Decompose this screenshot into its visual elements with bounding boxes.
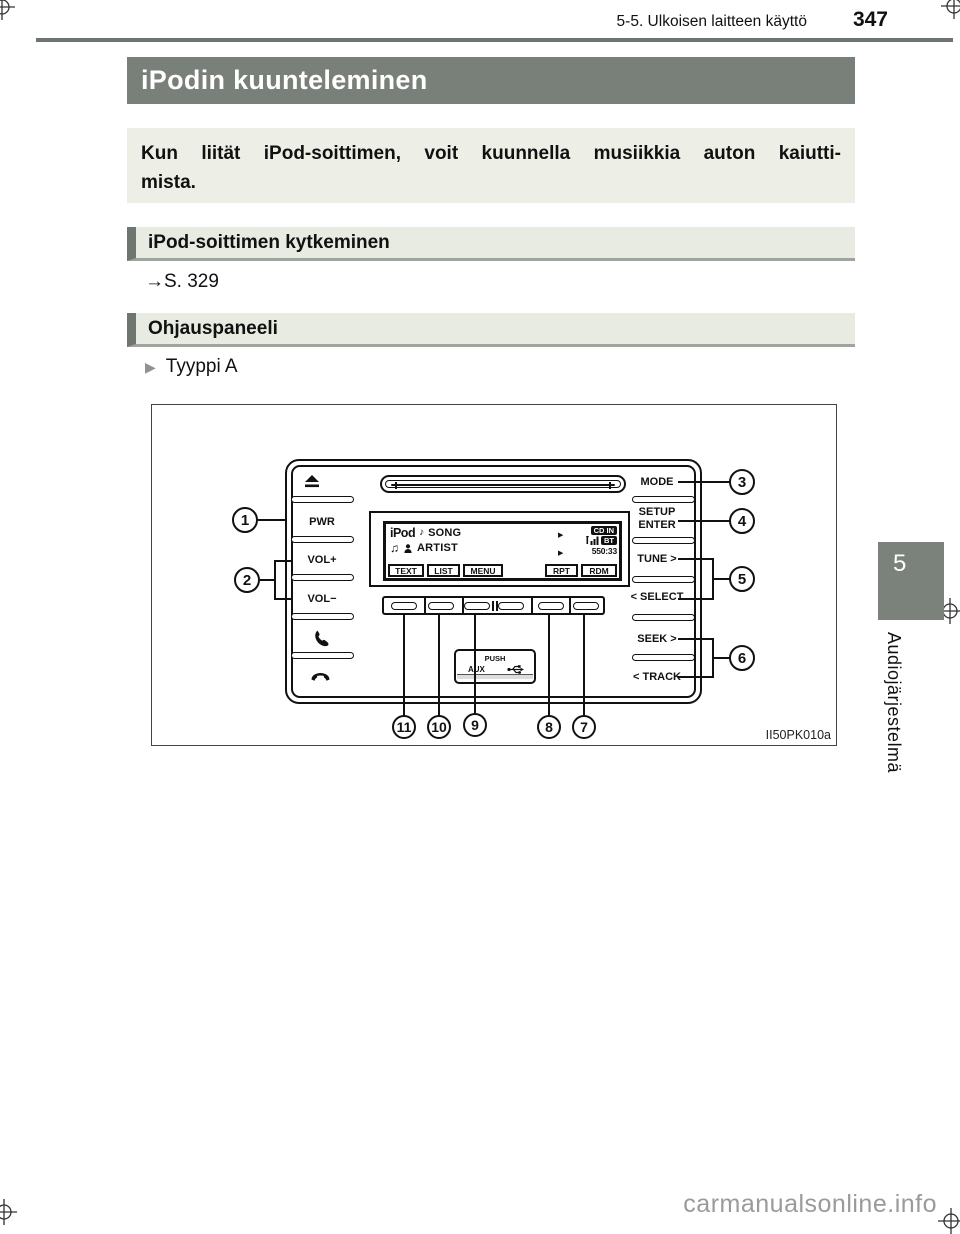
panel-button: [464, 602, 490, 610]
callout-line: [678, 520, 731, 522]
callout-bracket: [274, 560, 292, 562]
eject-icon: [304, 475, 320, 488]
display-panel: iPod ♪ SONG ♫ ARTIST ▶ ▶: [369, 511, 630, 587]
page-title-bar: iPodin kuunteleminen: [127, 57, 855, 104]
panel-button: [573, 602, 599, 610]
section-heading: Ohjauspaneeli: [148, 318, 278, 339]
intro-line: Kun liität iPod-soittimen, voit kuunnell…: [141, 139, 841, 168]
time-counter: 550:33: [592, 546, 617, 556]
callout-line: [258, 519, 286, 521]
callout-bracket: [678, 676, 714, 678]
menu-key: TEXT: [388, 564, 424, 577]
callout-bracket: [678, 558, 714, 560]
callout-line: [583, 615, 585, 717]
separator-button: [291, 613, 354, 620]
artist-label: ARTIST: [417, 542, 458, 554]
separator-button: [632, 576, 695, 583]
setup-label: SETUP: [622, 506, 692, 519]
callout-badge: 9: [463, 713, 487, 737]
callout-line: [438, 615, 440, 717]
panel-button: [538, 602, 564, 610]
separator-button: [291, 574, 354, 581]
power-label: PWR: [287, 516, 357, 528]
callout-badge: 2: [234, 567, 260, 593]
strip-center-mark: [496, 601, 498, 611]
cd-slot-latch: [395, 482, 397, 489]
section-heading: iPod-soittimen kytkeminen: [148, 232, 390, 253]
separator-button: [291, 652, 354, 659]
setup-enter-label: SETUP ENTER: [622, 506, 692, 531]
separator-button: [632, 496, 695, 503]
aux-panel: PUSH AUX: [454, 649, 536, 684]
callout-line: [678, 481, 731, 483]
separator-button: [291, 536, 354, 543]
type-row: ▶ Tyyppi A: [145, 356, 238, 378]
callout-badge: 5: [729, 566, 755, 592]
play-icon: ▶: [558, 531, 570, 539]
cd-in-badge: CD IN: [591, 526, 617, 535]
phone-call-icon: [313, 630, 330, 647]
push-label: PUSH: [456, 654, 534, 663]
registration-mark-icon: [938, 1208, 960, 1234]
header-section-title: 5-5. Ulkoisen laitteen käyttö: [617, 13, 807, 31]
diagram-frame: PWR VOL+ VOL− MODE SETUP ENTER TUNE > < …: [151, 404, 837, 746]
panel-button: [428, 602, 454, 610]
separator-button: [632, 614, 695, 621]
intro-box: Kun liität iPod-soittimen, voit kuunnell…: [127, 128, 855, 203]
chapter-number: 5: [893, 550, 906, 577]
callout-badge: 10: [427, 715, 451, 739]
menu-key: RDM: [581, 564, 617, 577]
registration-mark-icon: [0, 1199, 17, 1225]
select-label: < SELECT: [622, 591, 692, 603]
registration-mark-icon: [0, 0, 15, 20]
song-label: SONG: [428, 527, 461, 539]
callout-badge: 8: [537, 715, 561, 739]
callout-bracket: [678, 598, 714, 600]
bt-badge: BT: [601, 536, 617, 545]
cd-slot: [380, 475, 626, 493]
panel-button: [391, 602, 417, 610]
callout-line: [548, 615, 550, 717]
intro-line: mista.: [141, 168, 841, 197]
strip-divider: [424, 598, 426, 613]
play-icon: ▶: [558, 549, 570, 557]
list-marker-icon: ▶: [145, 359, 156, 376]
ipod-logo: iPod: [390, 526, 415, 540]
separator-button: [291, 496, 354, 503]
aux-label: AUX: [468, 665, 485, 674]
callout-line: [474, 615, 476, 715]
callout-bracket: [274, 560, 276, 600]
page-number: 347: [853, 8, 888, 32]
callout-line: [403, 615, 405, 717]
display-screen: iPod ♪ SONG ♫ ARTIST ▶ ▶: [383, 521, 622, 581]
registration-mark-icon: [941, 0, 960, 19]
menu-key: RPT: [545, 564, 578, 577]
section-header-panel: Ohjauspaneeli: [127, 313, 855, 347]
aux-panel-band: [457, 674, 533, 679]
music-note-icon: ♪: [419, 527, 424, 538]
callout-bracket: [678, 638, 714, 640]
menu-key: MENU: [463, 564, 503, 577]
page-title: iPodin kuunteleminen: [141, 65, 428, 95]
callout-badge: 7: [572, 715, 596, 739]
separator-button: [632, 537, 695, 544]
separator-button: [632, 654, 695, 661]
cd-slot-opening: [391, 484, 615, 486]
header-rule: [36, 38, 953, 42]
button-strip: [382, 596, 605, 615]
reference-text: →S. 329: [145, 271, 219, 292]
panel-button: [498, 602, 524, 610]
figure-code: II50PK010a: [766, 728, 831, 742]
strip-center-mark: [492, 601, 494, 611]
artist-icon: [404, 544, 412, 553]
chapter-title-vertical: Audiojärjestelmä: [883, 632, 904, 773]
callout-badge: 6: [729, 645, 755, 671]
callout-badge: 4: [729, 508, 755, 534]
strip-divider: [569, 598, 571, 613]
menu-key: LIST: [427, 564, 460, 577]
strip-divider: [531, 598, 533, 613]
callout-badge: 1: [232, 507, 258, 533]
music-notes-icon: ♫: [390, 541, 399, 555]
display-menu-row: TEXT LIST MENU RPT RDM: [388, 562, 617, 577]
section-header-connect: iPod-soittimen kytkeminen: [127, 227, 855, 261]
watermark-link[interactable]: carmanualsonline.info: [683, 1190, 937, 1219]
callout-badge: 11: [392, 715, 416, 739]
callout-bracket: [274, 598, 292, 600]
cd-slot-latch: [609, 482, 611, 489]
chapter-tab: 5: [878, 542, 944, 620]
volume-up-label: VOL+: [287, 554, 357, 566]
phone-end-icon: [310, 671, 331, 681]
page-reference: →S. 329: [145, 271, 219, 293]
type-label: Tyyppi A: [166, 356, 238, 378]
signal-bars-icon: [586, 536, 599, 545]
page-header: 5-5. Ulkoisen laitteen käyttö 347: [617, 8, 888, 32]
volume-down-label: VOL−: [287, 593, 357, 605]
callout-badge: 3: [729, 469, 755, 495]
